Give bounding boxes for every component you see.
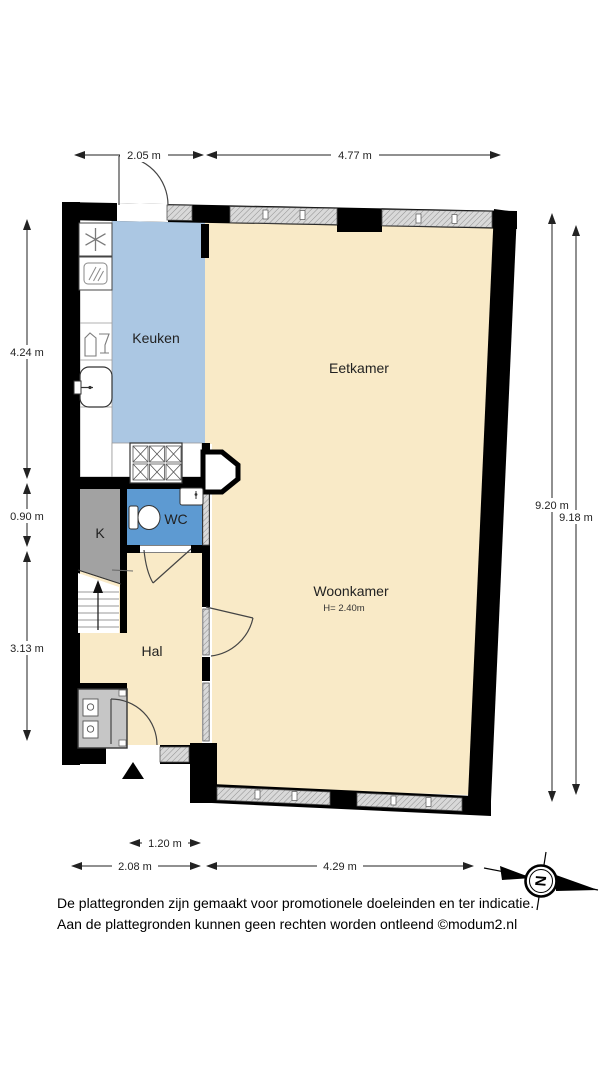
compass-n-label: N — [531, 875, 549, 887]
room-label-keuken: Keuken — [132, 330, 179, 346]
dim-left-1: 4.24 m — [10, 347, 44, 359]
room-label-hal: Hal — [141, 643, 162, 659]
room-label-wc: WC — [164, 511, 187, 527]
window-hal-south — [160, 747, 189, 762]
wall-k-east — [120, 487, 127, 633]
dim-left-2: 0.90 m — [10, 511, 44, 523]
dim-bottom-inner: 1.20 m — [148, 838, 182, 850]
glazed-door-hal-living — [203, 609, 209, 655]
ceiling-height-note: H= 2.40m — [323, 603, 365, 614]
window-top-1 — [167, 205, 192, 221]
compass-north-arrow — [556, 875, 598, 891]
disclaimer-line-2: Aan de plattegronden kunnen geen rechten… — [57, 914, 577, 935]
disclaimer: De plattegronden zijn gemaakt voor promo… — [57, 893, 577, 935]
toilet-bowl — [138, 506, 160, 530]
door-balcony — [119, 156, 168, 205]
chimney-bay — [203, 452, 238, 492]
window-hal-east — [203, 683, 209, 741]
dim-left-3: 3.13 m — [10, 643, 44, 655]
dim-bottom-2: 4.29 m — [323, 861, 357, 873]
dim-top-2: 4.77 m — [338, 150, 372, 162]
room-label-k: K — [95, 525, 105, 541]
room-label-woonkamer: Woonkamer — [313, 583, 389, 599]
meter-cupboard — [78, 689, 127, 748]
room-fills — [78, 219, 497, 795]
wall-pier-ext — [337, 222, 382, 232]
wc-basin — [180, 488, 203, 505]
wall-stub-top — [201, 224, 209, 258]
dim-right-2: 9.18 m — [559, 512, 593, 524]
window-top-3 — [382, 210, 492, 228]
dim-bottom-1: 2.08 m — [118, 861, 152, 873]
floorplan-page: Keuken Eetkamer Woonkamer H= 2.40m WC K … — [0, 0, 608, 1080]
toilet-tank — [129, 506, 138, 529]
stove — [130, 443, 182, 483]
entrance-marker — [122, 762, 144, 779]
window-wc-east — [203, 493, 209, 545]
disclaimer-line-1: De plattegronden zijn gemaakt voor promo… — [57, 893, 577, 914]
room-label-eetkamer: Eetkamer — [329, 360, 389, 376]
living-dining-floor — [205, 221, 497, 795]
window-top-2 — [230, 207, 337, 225]
dim-top-1: 2.05 m — [127, 150, 161, 162]
